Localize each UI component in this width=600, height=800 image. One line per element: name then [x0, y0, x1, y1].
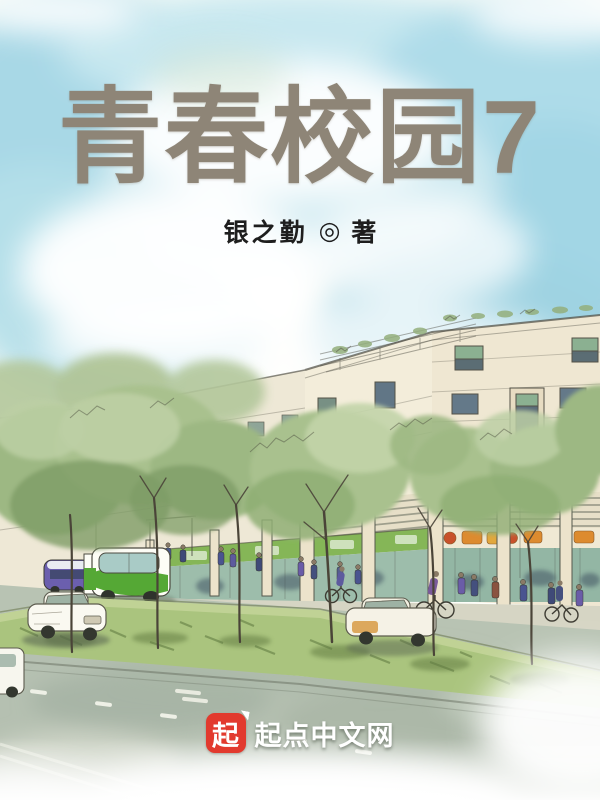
author-separator-icon: ◎ [319, 216, 341, 246]
glass-front-right [432, 548, 600, 602]
publisher-logo: 起 起点中文网 [0, 713, 600, 753]
author-role: 著 [351, 213, 376, 249]
edge-vehicle [0, 648, 24, 698]
purple-minibus [44, 560, 90, 594]
book-cover: 青春校园7 银之勤 ◎ 著 起 起点中文网 [0, 0, 600, 800]
badge-character: 起 [212, 714, 239, 753]
author-line: 银之勤 ◎ 著 [0, 213, 600, 249]
author-name: 银之勤 [224, 213, 308, 249]
book-title: 青春校园7 [0, 84, 600, 193]
qidian-badge-icon: 起 [206, 713, 246, 753]
publisher-name: 起点中文网 [255, 714, 395, 753]
